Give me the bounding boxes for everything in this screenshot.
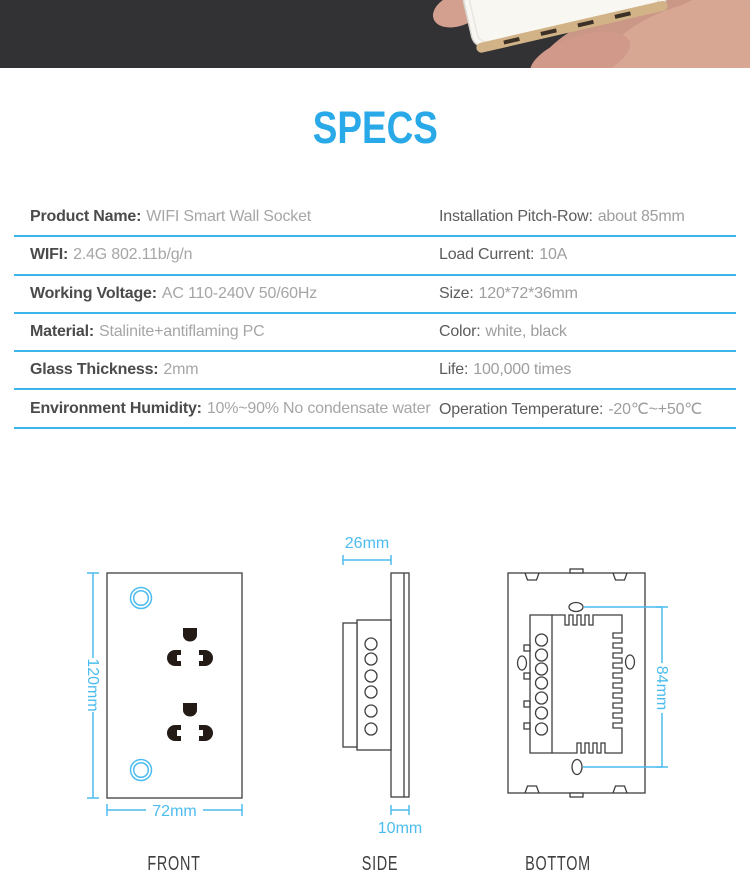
front-view-label: FRONT (147, 853, 200, 876)
spec-value: 2mm (163, 361, 198, 378)
product-spec-page: SPECS Product Name:WIFI Smart Wall Socke… (0, 0, 750, 879)
spec-value: white, black (485, 323, 566, 340)
spec-label: Installation Pitch-Row: (439, 208, 593, 225)
spec-label: Working Voltage: (30, 285, 157, 302)
spec-label: Glass Thickness: (30, 361, 158, 378)
spec-value: AC 110-240V 50/60Hz (162, 285, 317, 302)
bottom-height-dimension: 84mm (653, 666, 670, 710)
spec-label: Environment Humidity: (30, 400, 202, 417)
header-band (0, 0, 750, 68)
table-row: Material:Stalinite+antiflaming PC Color:… (14, 314, 736, 352)
page-title: SPECS (0, 102, 750, 154)
spec-value: 10A (539, 246, 567, 263)
front-height-dimension: 120mm (84, 658, 101, 711)
spec-label: Material: (30, 323, 94, 340)
table-row: Environment Humidity:10%~90% No condensa… (14, 390, 736, 428)
bottom-view-label: BOTTOM (525, 853, 591, 876)
spec-label: Operation Temperature: (439, 401, 603, 418)
spec-label: Product Name: (30, 208, 141, 225)
spec-label: Size: (439, 285, 474, 302)
table-row: Product Name:WIFI Smart Wall Socket Inst… (14, 199, 736, 237)
spec-value: -20℃~+50℃ (608, 401, 702, 418)
spec-value: WIFI Smart Wall Socket (146, 208, 311, 225)
table-row: Working Voltage:AC 110-240V 50/60Hz Size… (14, 276, 736, 314)
spec-value: 120*72*36mm (479, 285, 578, 302)
bottom-view-drawing: 84mm (490, 555, 690, 835)
spec-label: Life: (439, 361, 468, 378)
front-view-drawing: 120mm 72mm (60, 555, 260, 835)
front-width-dimension: 72mm (152, 803, 196, 820)
spec-value: 2.4G 802.11b/g/n (73, 246, 192, 263)
side-depth-dimension: 26mm (345, 535, 389, 552)
table-row: Glass Thickness:2mm Life:100,000 times (14, 352, 736, 390)
spec-value: about 85mm (598, 208, 685, 225)
spec-table: Product Name:WIFI Smart Wall Socket Inst… (14, 199, 736, 429)
spec-label: Load Current: (439, 246, 534, 263)
spec-value: 100,000 times (473, 361, 571, 378)
side-view-label: SIDE (362, 853, 398, 876)
hand-holding-socket-photo (420, 0, 750, 68)
spec-value: Stalinite+antiflaming PC (99, 323, 265, 340)
side-plate-dimension: 10mm (378, 820, 422, 837)
spec-label: WIFI: (30, 246, 68, 263)
side-view-drawing: 26mm 10mm (330, 530, 450, 850)
spec-value: 10%~90% No condensate water (207, 400, 431, 417)
spec-label: Color: (439, 323, 480, 340)
table-row: WIFI:2.4G 802.11b/g/n Load Current:10A (14, 237, 736, 275)
page-title-text: SPECS (312, 102, 437, 154)
